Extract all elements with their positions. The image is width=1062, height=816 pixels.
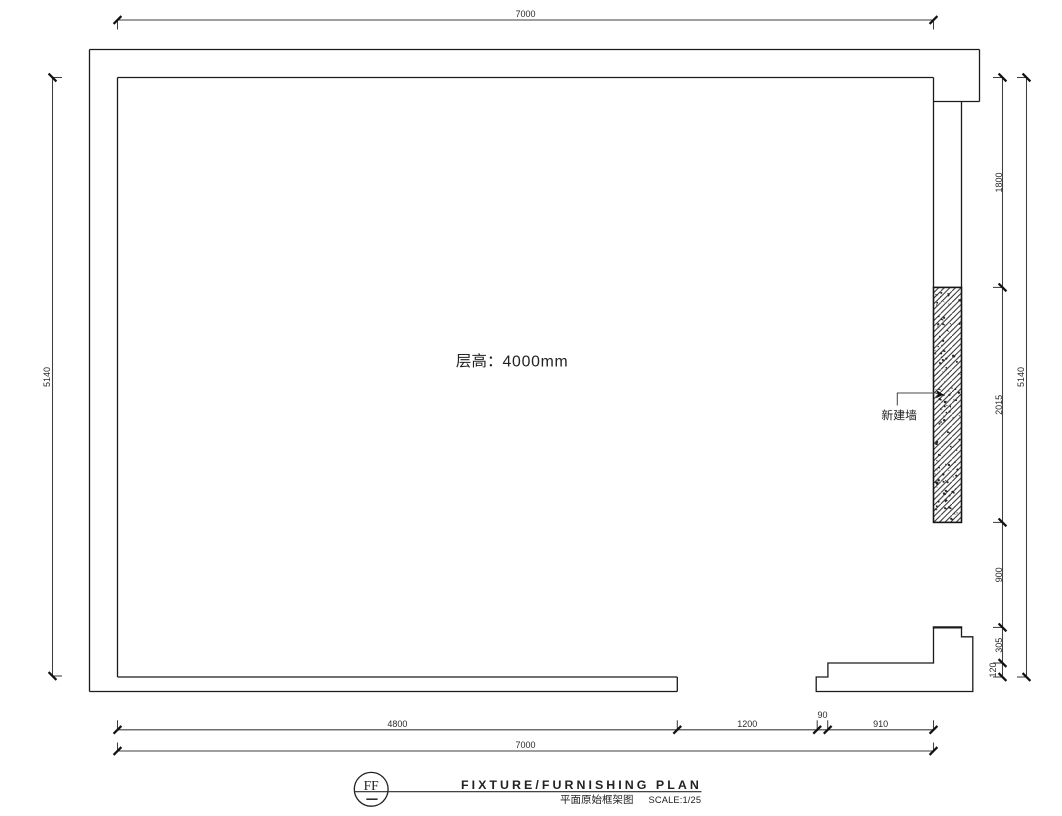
svg-text:7000: 7000 — [515, 9, 535, 19]
svg-text:120: 120 — [988, 662, 998, 677]
svg-text:2015: 2015 — [994, 395, 1004, 415]
svg-text:90: 90 — [817, 710, 827, 720]
svg-text:FIXTURE/FURNISHING PLAN: FIXTURE/FURNISHING PLAN — [461, 778, 702, 792]
svg-text:7000: 7000 — [515, 740, 535, 750]
svg-text:900: 900 — [994, 567, 1004, 582]
svg-text:5140: 5140 — [42, 367, 52, 387]
svg-text:FF: FF — [364, 778, 380, 793]
svg-text:1200: 1200 — [737, 719, 757, 729]
svg-text:1800: 1800 — [994, 172, 1004, 192]
svg-text:SCALE:1/25: SCALE:1/25 — [649, 795, 702, 805]
svg-text:4000mm: 4000mm — [503, 353, 569, 370]
svg-text:910: 910 — [873, 719, 888, 729]
svg-text:4800: 4800 — [387, 719, 407, 729]
svg-text:305: 305 — [994, 638, 1004, 653]
svg-text:5140: 5140 — [1016, 367, 1026, 387]
